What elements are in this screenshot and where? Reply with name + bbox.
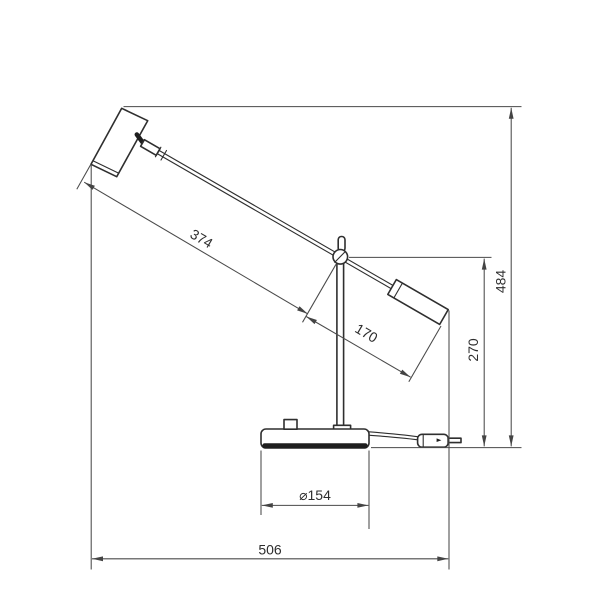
power-cord-upper bbox=[369, 432, 423, 438]
label-front-arm-length: 374 bbox=[187, 226, 215, 252]
technical-drawing-desk-lamp: 374 170 484 270 ⌀154 506 bbox=[0, 0, 600, 600]
dimension-labels: 374 170 484 270 ⌀154 506 bbox=[187, 226, 508, 558]
label-rear-arm-length: 170 bbox=[352, 320, 380, 346]
head-hinge-pin bbox=[138, 137, 142, 141]
label-overall-length: 506 bbox=[258, 542, 282, 558]
lamp-head bbox=[91, 108, 148, 176]
base-bottom-plate bbox=[262, 443, 367, 448]
ext-line-tube-end-perp bbox=[409, 326, 441, 382]
power-plug-pin bbox=[448, 438, 461, 442]
ext-line-head-corner-perp bbox=[77, 165, 91, 189]
arm-rod-lower-edge bbox=[157, 154, 393, 290]
label-base-diameter: ⌀154 bbox=[299, 487, 331, 503]
power-plug-body bbox=[418, 434, 449, 447]
arm-rod-upper-edge bbox=[159, 150, 395, 286]
counterweight-tube bbox=[388, 280, 448, 325]
lamp bbox=[91, 108, 461, 448]
dim-line-front-arm-374 bbox=[84, 182, 308, 314]
power-switch bbox=[284, 420, 297, 430]
drawing-svg: 374 170 484 270 ⌀154 506 bbox=[0, 0, 600, 600]
label-total-height: 484 bbox=[493, 270, 509, 294]
label-pivot-height: 270 bbox=[465, 338, 481, 362]
dimension-lines bbox=[84, 108, 511, 559]
